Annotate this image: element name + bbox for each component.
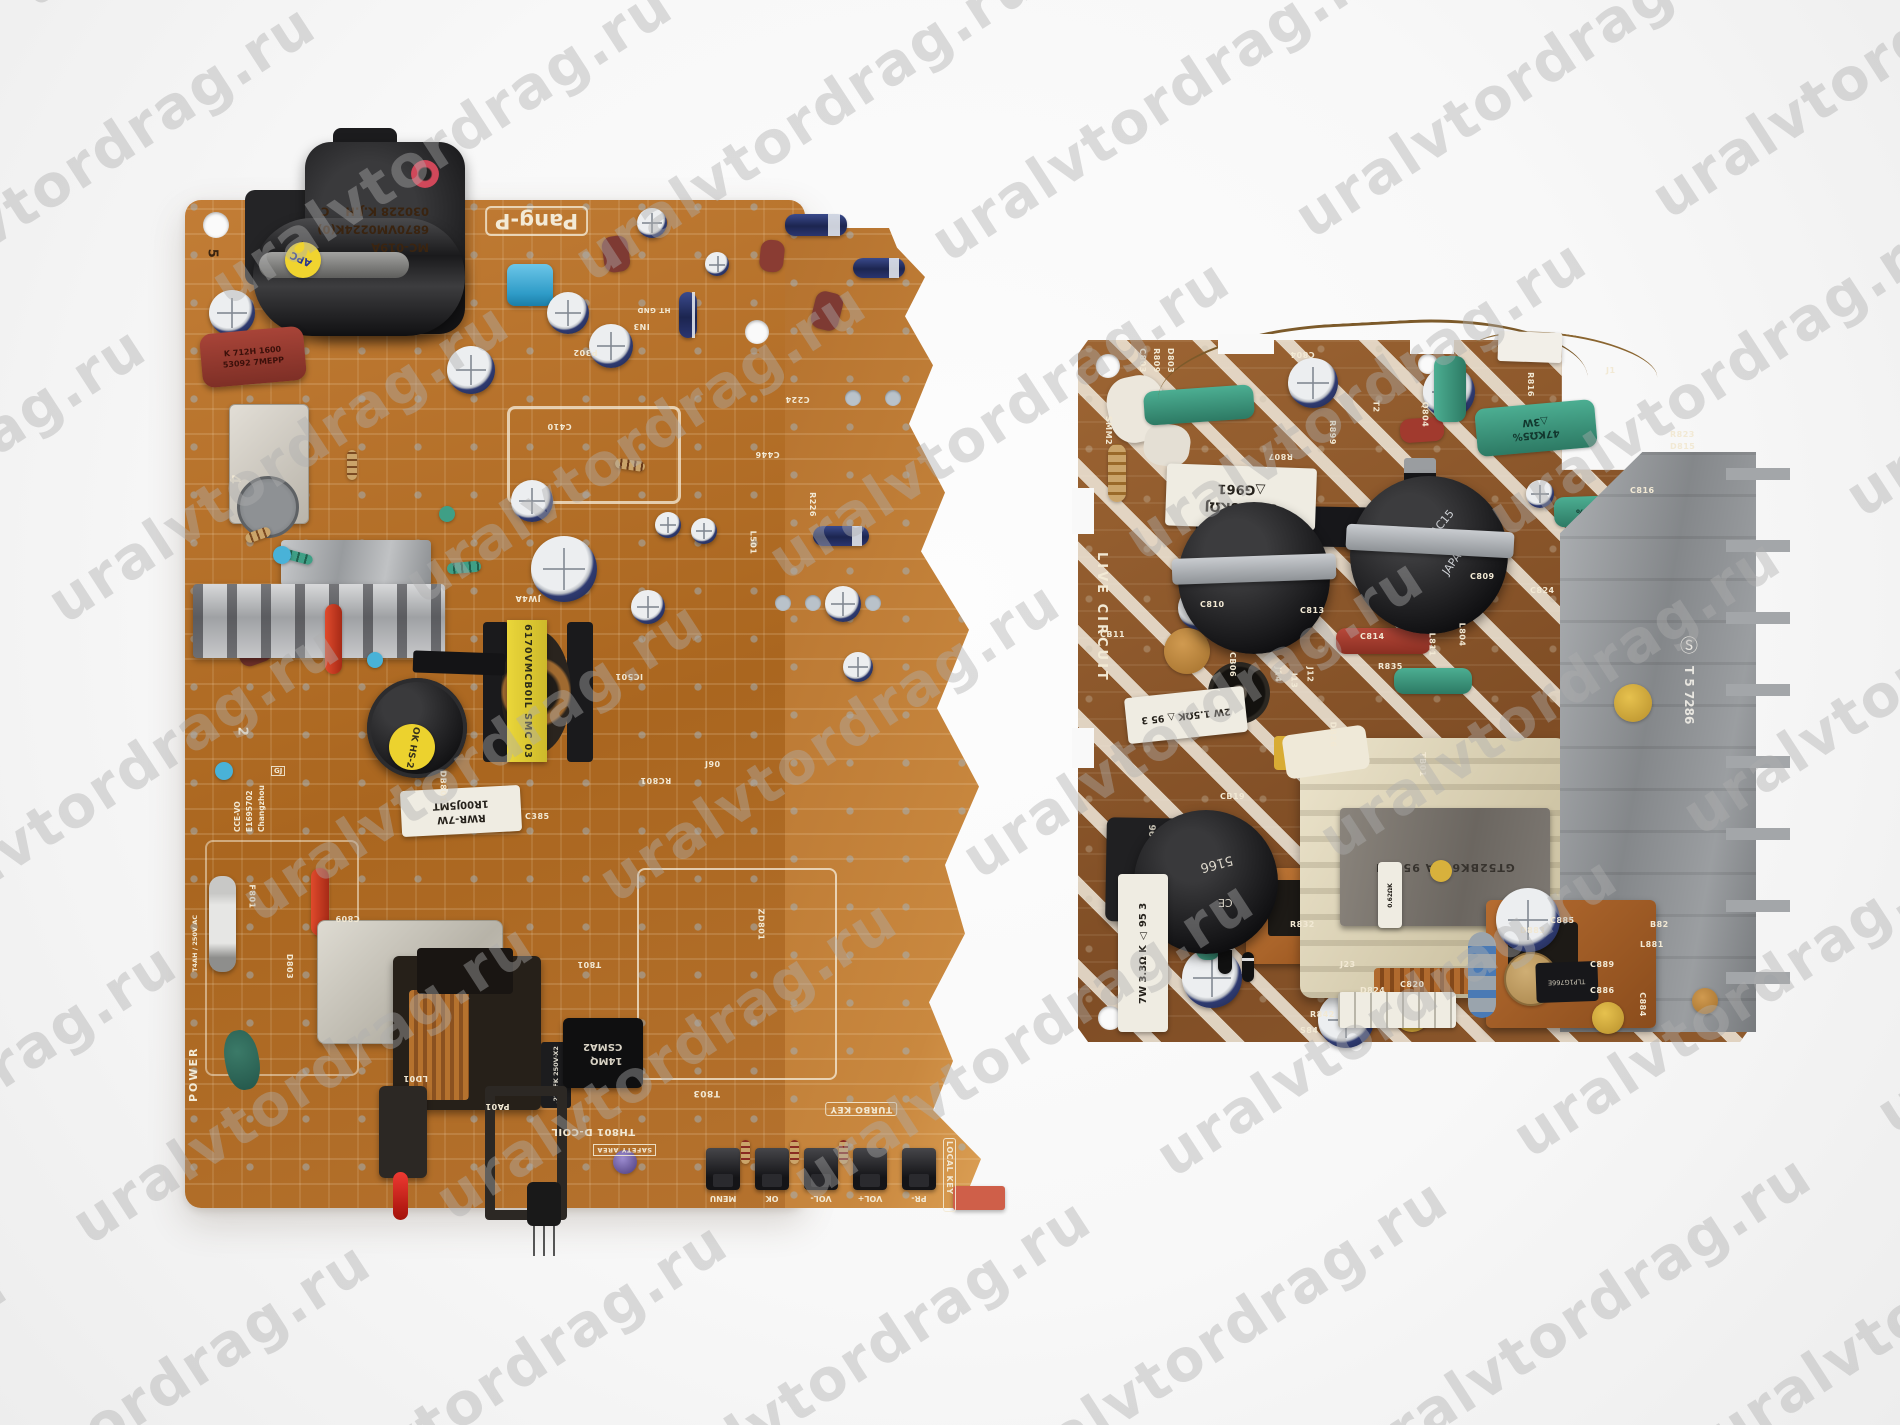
switch-label: PR-	[895, 1194, 943, 1203]
silkscreen-label: J90	[705, 760, 721, 769]
silkscreen-label: J12	[1305, 667, 1314, 683]
switch-label: VOL-	[797, 1194, 845, 1203]
electrolytic-capacitor	[589, 324, 633, 368]
silkscreen-label: F801	[248, 884, 257, 908]
silkscreen-label: DB26	[1328, 722, 1337, 748]
silkscreen-label: T2	[1372, 400, 1381, 412]
silkscreen-label: T801	[577, 960, 601, 969]
silkscreen-label: CB06	[1228, 652, 1237, 677]
solder-pad	[775, 595, 791, 611]
tact-switch-vol-up	[853, 1148, 887, 1190]
led-bracket	[379, 1086, 427, 1178]
silkscreen-box	[637, 868, 837, 1080]
solder-pad	[805, 595, 821, 611]
electrolytic-capacitor	[637, 208, 667, 238]
silkscreen-label: S84	[1300, 1026, 1318, 1035]
electrolytic-capacitor	[447, 346, 495, 394]
ceramic-disc	[439, 506, 455, 522]
turbo-key-text: TURBO KEY	[825, 1102, 897, 1116]
silkscreen-label: J13	[1289, 673, 1298, 689]
tact-switch-pr	[902, 1148, 936, 1190]
brand-marking: Pang-P	[485, 206, 588, 236]
tact-switch-ok	[755, 1148, 789, 1190]
fuse	[209, 876, 236, 972]
ir-receiver	[527, 1182, 561, 1226]
silkscreen-label: C886	[1590, 986, 1615, 995]
t803-text: T803	[693, 1088, 720, 1098]
silkscreen-label: C814	[1360, 632, 1385, 641]
silkscreen-label: R226	[808, 492, 817, 517]
ok-sticker-text: OK HS-2	[403, 725, 421, 768]
board-rev: C	[321, 205, 329, 219]
silkscreen-label: R809	[1152, 348, 1161, 373]
yellow-tape-text: 6170VMCB0IL SMC 03	[522, 624, 533, 759]
rwr-resistor-label: RWR-7W1R00J5MT	[400, 785, 522, 837]
silkscreen-label: IN3	[633, 322, 650, 331]
silkscreen-label: IC501	[615, 672, 643, 681]
silkscreen-label: JW4A	[515, 594, 541, 603]
board-id-marking: MC-019A 6870VM0224K(0) 030228 K.J.HC	[219, 202, 429, 255]
silkscreen-label: C809	[1470, 572, 1495, 581]
copper-winding	[409, 990, 469, 1100]
electrolytic-capacitor	[511, 480, 553, 522]
silkscreen-label: SMM2	[1104, 416, 1113, 445]
silkscreen-label: L811	[1427, 633, 1436, 657]
orange-tab	[953, 1186, 1005, 1210]
electrolytic-capacitor	[209, 290, 255, 336]
silkscreen-label: R807	[1268, 452, 1293, 461]
silkscreen-label: L804	[1457, 623, 1466, 647]
ceramic-disc	[215, 762, 233, 780]
silkscreen-label: C820	[1400, 980, 1425, 989]
electrolytic-capacitor	[531, 536, 597, 602]
silkscreen-label: P302	[573, 348, 598, 357]
cce-label: CCE-VO E1695702 Changzhou GJ	[233, 722, 293, 832]
silkscreen-layer-right: C803R809D803SMM2C804R807R899T2Q804R816J1…	[1078, 340, 1818, 1050]
silkscreen-label: Q804	[1420, 402, 1429, 428]
power-ic: 14MQCSMA2	[563, 1018, 643, 1088]
silkscreen-label: C224	[785, 395, 810, 404]
red-capacitor-small	[325, 604, 342, 674]
silkscreen-label: C889	[1590, 960, 1615, 969]
axial-capacitor	[679, 292, 697, 338]
electrolytic-capacitor	[825, 586, 861, 622]
silkscreen-label: D824	[1360, 986, 1385, 995]
tact-switch-menu	[706, 1148, 740, 1190]
maroon-capacitor	[758, 239, 785, 273]
local-key-text: LOCAL KEY	[943, 1138, 956, 1212]
silkscreen-label: J1	[1606, 366, 1616, 375]
electrolytic-capacitor	[631, 590, 665, 624]
silkscreen-label: LD01	[403, 1074, 428, 1083]
edge-number: 5	[204, 249, 219, 259]
silkscreen-label: L501	[748, 531, 757, 555]
switch-label: VOL+	[846, 1194, 894, 1203]
edge-number: 4	[226, 475, 241, 485]
ok-sticker: OK HS-2	[389, 724, 435, 770]
flyback-red-ring	[411, 160, 439, 188]
silkscreen-label: C446	[755, 450, 780, 459]
heatsink-finned	[193, 584, 445, 658]
silkscreen-label: HT GND	[637, 306, 671, 314]
th801-text: TH801 D-COIL	[551, 1126, 635, 1137]
board-date-code: 030228 K.J.HC	[219, 202, 429, 220]
silkscreen-label: C884	[1638, 992, 1647, 1017]
silkscreen-label: R835	[1378, 662, 1403, 671]
yellow-tape: 6170VMCB0IL SMC 03	[507, 620, 547, 762]
solder-pad	[845, 390, 861, 406]
silkscreen-label: C804	[1290, 350, 1315, 359]
silkscreen-label: J23	[1340, 960, 1356, 969]
solder-pad	[885, 390, 901, 406]
ceramic-disc	[273, 546, 291, 564]
silkscreen-label: D803	[285, 954, 294, 979]
silkscreen-label: ZD801	[756, 909, 765, 941]
silkscreen-label: L881	[1640, 940, 1664, 949]
silkscreen-label: C813	[1300, 606, 1325, 615]
silkscreen-label: B82	[1650, 920, 1669, 929]
board-part-number: 6870VM0224K(0)	[219, 220, 429, 238]
red-led	[393, 1172, 408, 1220]
electrolytic-capacitor	[705, 252, 729, 276]
transformer-core-top	[417, 948, 513, 994]
axial-capacitor	[813, 526, 869, 546]
silkscreen-label: R823	[1670, 430, 1695, 439]
silkscreen-label: C810	[1200, 600, 1225, 609]
resistor	[839, 1140, 848, 1164]
ceramic-disc	[367, 652, 383, 668]
power-section-text: POWER	[187, 1010, 200, 1102]
left-pcb-board: APC MC-019A 6870VM0224K(0) 030228 K.J.HC…	[185, 200, 985, 1210]
right-pcb-board: 5W6.8KΩJ△G961 47KΩ5%△3W 33KΩ5% AC15 JAPA…	[1078, 340, 1818, 1050]
silkscreen-label: RC801	[640, 776, 671, 785]
switch-label: MENU	[699, 1194, 747, 1203]
electrolytic-capacitor	[547, 292, 589, 334]
red-capacitor: K 712H 1600 53092 7MEPP	[199, 326, 307, 389]
tact-switch-vol-down	[804, 1148, 838, 1190]
safety-area-text: SAFETY AREA	[593, 1144, 656, 1156]
edge-number: 2	[234, 727, 249, 737]
axial-capacitor	[785, 214, 847, 236]
power-ic-text: 14MQCSMA2	[583, 1040, 622, 1067]
ic-chip	[413, 650, 506, 675]
mounting-hole	[745, 320, 769, 344]
silkscreen-label: D803	[1166, 348, 1175, 373]
board-model: MC-019A	[219, 238, 429, 256]
silkscreen-label: C816	[1630, 486, 1655, 495]
ir-receiver-legs	[533, 1226, 557, 1256]
silkscreen-label: CB19	[1220, 792, 1245, 801]
silkscreen-label: R832	[1290, 920, 1315, 929]
silkscreen-label: C385	[525, 812, 550, 821]
switch-label: OK	[748, 1194, 796, 1203]
silkscreen-label: TB01	[1418, 752, 1427, 777]
photo-canvas: APC MC-019A 6870VM0224K(0) 030228 K.J.HC…	[0, 0, 1900, 1425]
electrolytic-capacitor	[843, 652, 873, 682]
silkscreen-label: D883	[1520, 926, 1545, 935]
silkscreen-label: C410	[547, 422, 572, 431]
fuse-rating-text: T4AH / 250V AC	[191, 872, 199, 972]
silkscreen-label: R842	[1310, 1010, 1335, 1019]
flyback-metal-tube	[259, 252, 409, 278]
maroon-capacitor	[601, 234, 632, 273]
silkscreen-label: DB801	[438, 771, 447, 803]
resistor	[347, 450, 357, 480]
blue-ceramic-capacitor	[507, 264, 553, 306]
silkscreen-label: R899	[1328, 420, 1337, 445]
silkscreen-label: C824	[1530, 586, 1555, 595]
axial-capacitor	[853, 258, 905, 278]
electrolytic-capacitor	[655, 512, 681, 538]
resistor	[741, 1140, 750, 1164]
electrolytic-capacitor	[691, 518, 717, 544]
pa01-text: PA01	[485, 1102, 509, 1111]
silkscreen-label: C809	[335, 914, 360, 923]
silkscreen-label: C803	[1138, 348, 1147, 373]
silkscreen-label: J14	[1273, 667, 1282, 683]
resistor	[790, 1140, 799, 1164]
silkscreen-label: D815	[1670, 442, 1695, 451]
silkscreen-label: CB11	[1100, 630, 1125, 639]
silkscreen-label: C885	[1550, 916, 1575, 925]
solder-pad	[865, 595, 881, 611]
silkscreen-label: R816	[1526, 372, 1535, 397]
